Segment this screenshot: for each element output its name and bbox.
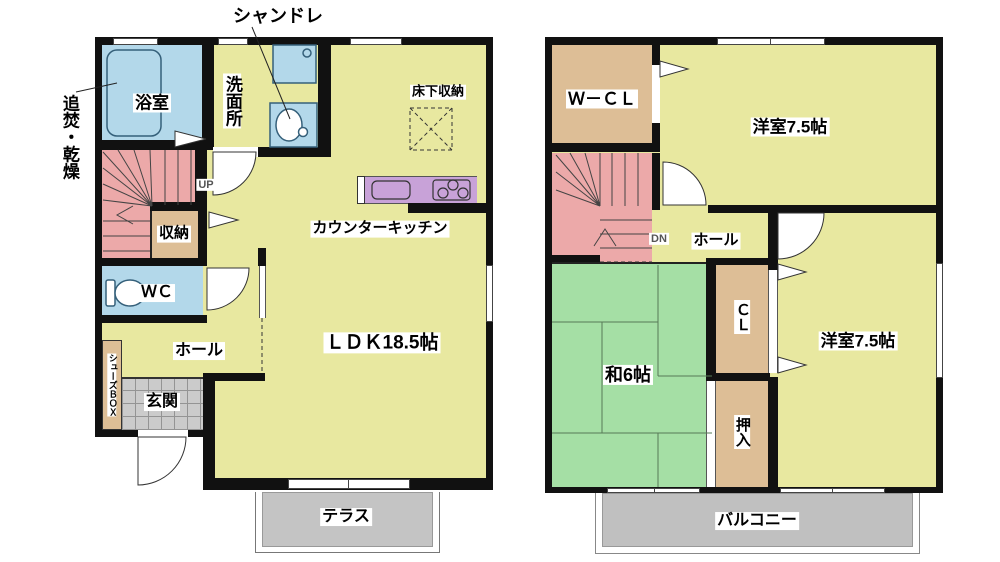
label-terrace: テラス — [320, 508, 372, 526]
label-storage: 収納 — [157, 226, 191, 243]
window — [832, 488, 885, 493]
window — [717, 38, 771, 45]
label-balcony: バルコニー — [715, 512, 799, 530]
wall — [706, 258, 716, 377]
label-underfloor-storage: 床下収納 — [410, 85, 466, 100]
window — [350, 38, 402, 45]
kitchen-counter — [365, 176, 477, 204]
window — [486, 265, 493, 322]
label-dn: DN — [649, 233, 669, 245]
stairs-upper — [102, 150, 195, 208]
wall — [706, 373, 770, 381]
label-bath: 浴室 — [133, 93, 171, 112]
label-ldk: ＬＤＫ18.5帖 — [324, 332, 441, 353]
sliding-door — [706, 381, 716, 487]
label-wc: ＷＣ — [139, 284, 175, 302]
wall — [198, 202, 207, 260]
kitchen-counter-edge — [357, 176, 365, 204]
wall — [552, 255, 600, 262]
footprint-cutout — [95, 437, 203, 490]
label-western-room-1: 洋室7.5帖 — [751, 117, 830, 136]
stairs-down — [552, 153, 652, 262]
window — [770, 38, 825, 45]
wall — [652, 123, 660, 152]
label-western-room-2: 洋室7.5帖 — [819, 331, 898, 350]
wall — [95, 315, 207, 323]
wall — [95, 258, 207, 266]
wall — [652, 37, 660, 65]
door-opening — [652, 65, 660, 123]
wall — [768, 377, 778, 493]
door-opening — [138, 430, 188, 437]
label-chandelier: シャンドレ — [231, 6, 325, 26]
floorplan-canvas: シャンドレ 追焚・乾燥 浴室 洗面所 UP 収納 ＷＣ ホール シューズＢＯＸ … — [0, 0, 1000, 562]
wall — [652, 153, 660, 210]
label-entrance: 玄関 — [144, 393, 180, 411]
sliding-door — [259, 266, 266, 318]
label-shoes-box: シューズＢＯＸ — [107, 354, 116, 417]
label-washroom: 洗面所 — [223, 74, 241, 129]
label-hall-2f: ホール — [691, 233, 740, 250]
label-counter-kitchen: カウンターキッチン — [310, 221, 449, 238]
window — [113, 38, 158, 45]
wall — [258, 248, 266, 266]
window — [607, 488, 655, 493]
wall — [95, 37, 102, 437]
wall — [95, 140, 202, 150]
window — [654, 488, 700, 493]
window — [780, 488, 833, 493]
window — [288, 479, 349, 489]
label-hall-1f: ホール — [173, 342, 225, 360]
wall — [203, 373, 215, 490]
wall — [545, 37, 552, 493]
closet-door — [768, 270, 778, 373]
label-closet: ＣＬ — [734, 300, 750, 334]
door-opening — [213, 147, 258, 157]
wall — [318, 37, 331, 157]
wall — [545, 143, 658, 152]
wall — [258, 147, 331, 157]
wall — [486, 37, 493, 490]
label-up: UP — [196, 179, 215, 191]
label-walk-in-closet: Ｗ－ＣＬ — [566, 89, 638, 108]
wall — [202, 37, 214, 150]
stairs-lower — [102, 208, 150, 260]
wall — [408, 203, 493, 213]
window — [348, 479, 410, 489]
window — [218, 38, 248, 45]
label-japanese-room: 和6帖 — [603, 365, 653, 385]
wall — [708, 205, 936, 213]
window — [936, 263, 943, 378]
label-futon-closet: 押入 — [734, 415, 750, 449]
label-reheat-dry: 追焚・乾燥 — [60, 93, 78, 182]
